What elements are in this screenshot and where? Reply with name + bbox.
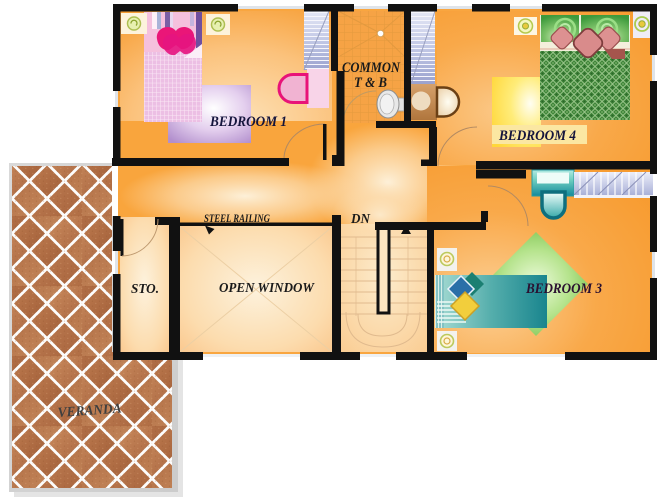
svg-text:BEDROOM 3: BEDROOM 3 — [525, 281, 602, 297]
svg-text:T & B: T & B — [354, 75, 387, 91]
svg-text:BEDROOM 4: BEDROOM 4 — [498, 128, 576, 144]
svg-text:OPEN WINDOW: OPEN WINDOW — [219, 280, 315, 295]
svg-text:DN: DN — [350, 212, 371, 227]
svg-text:COMMON: COMMON — [342, 60, 401, 76]
svg-text:BEDROOM 1: BEDROOM 1 — [209, 114, 287, 130]
svg-text:STO.: STO. — [131, 282, 159, 297]
